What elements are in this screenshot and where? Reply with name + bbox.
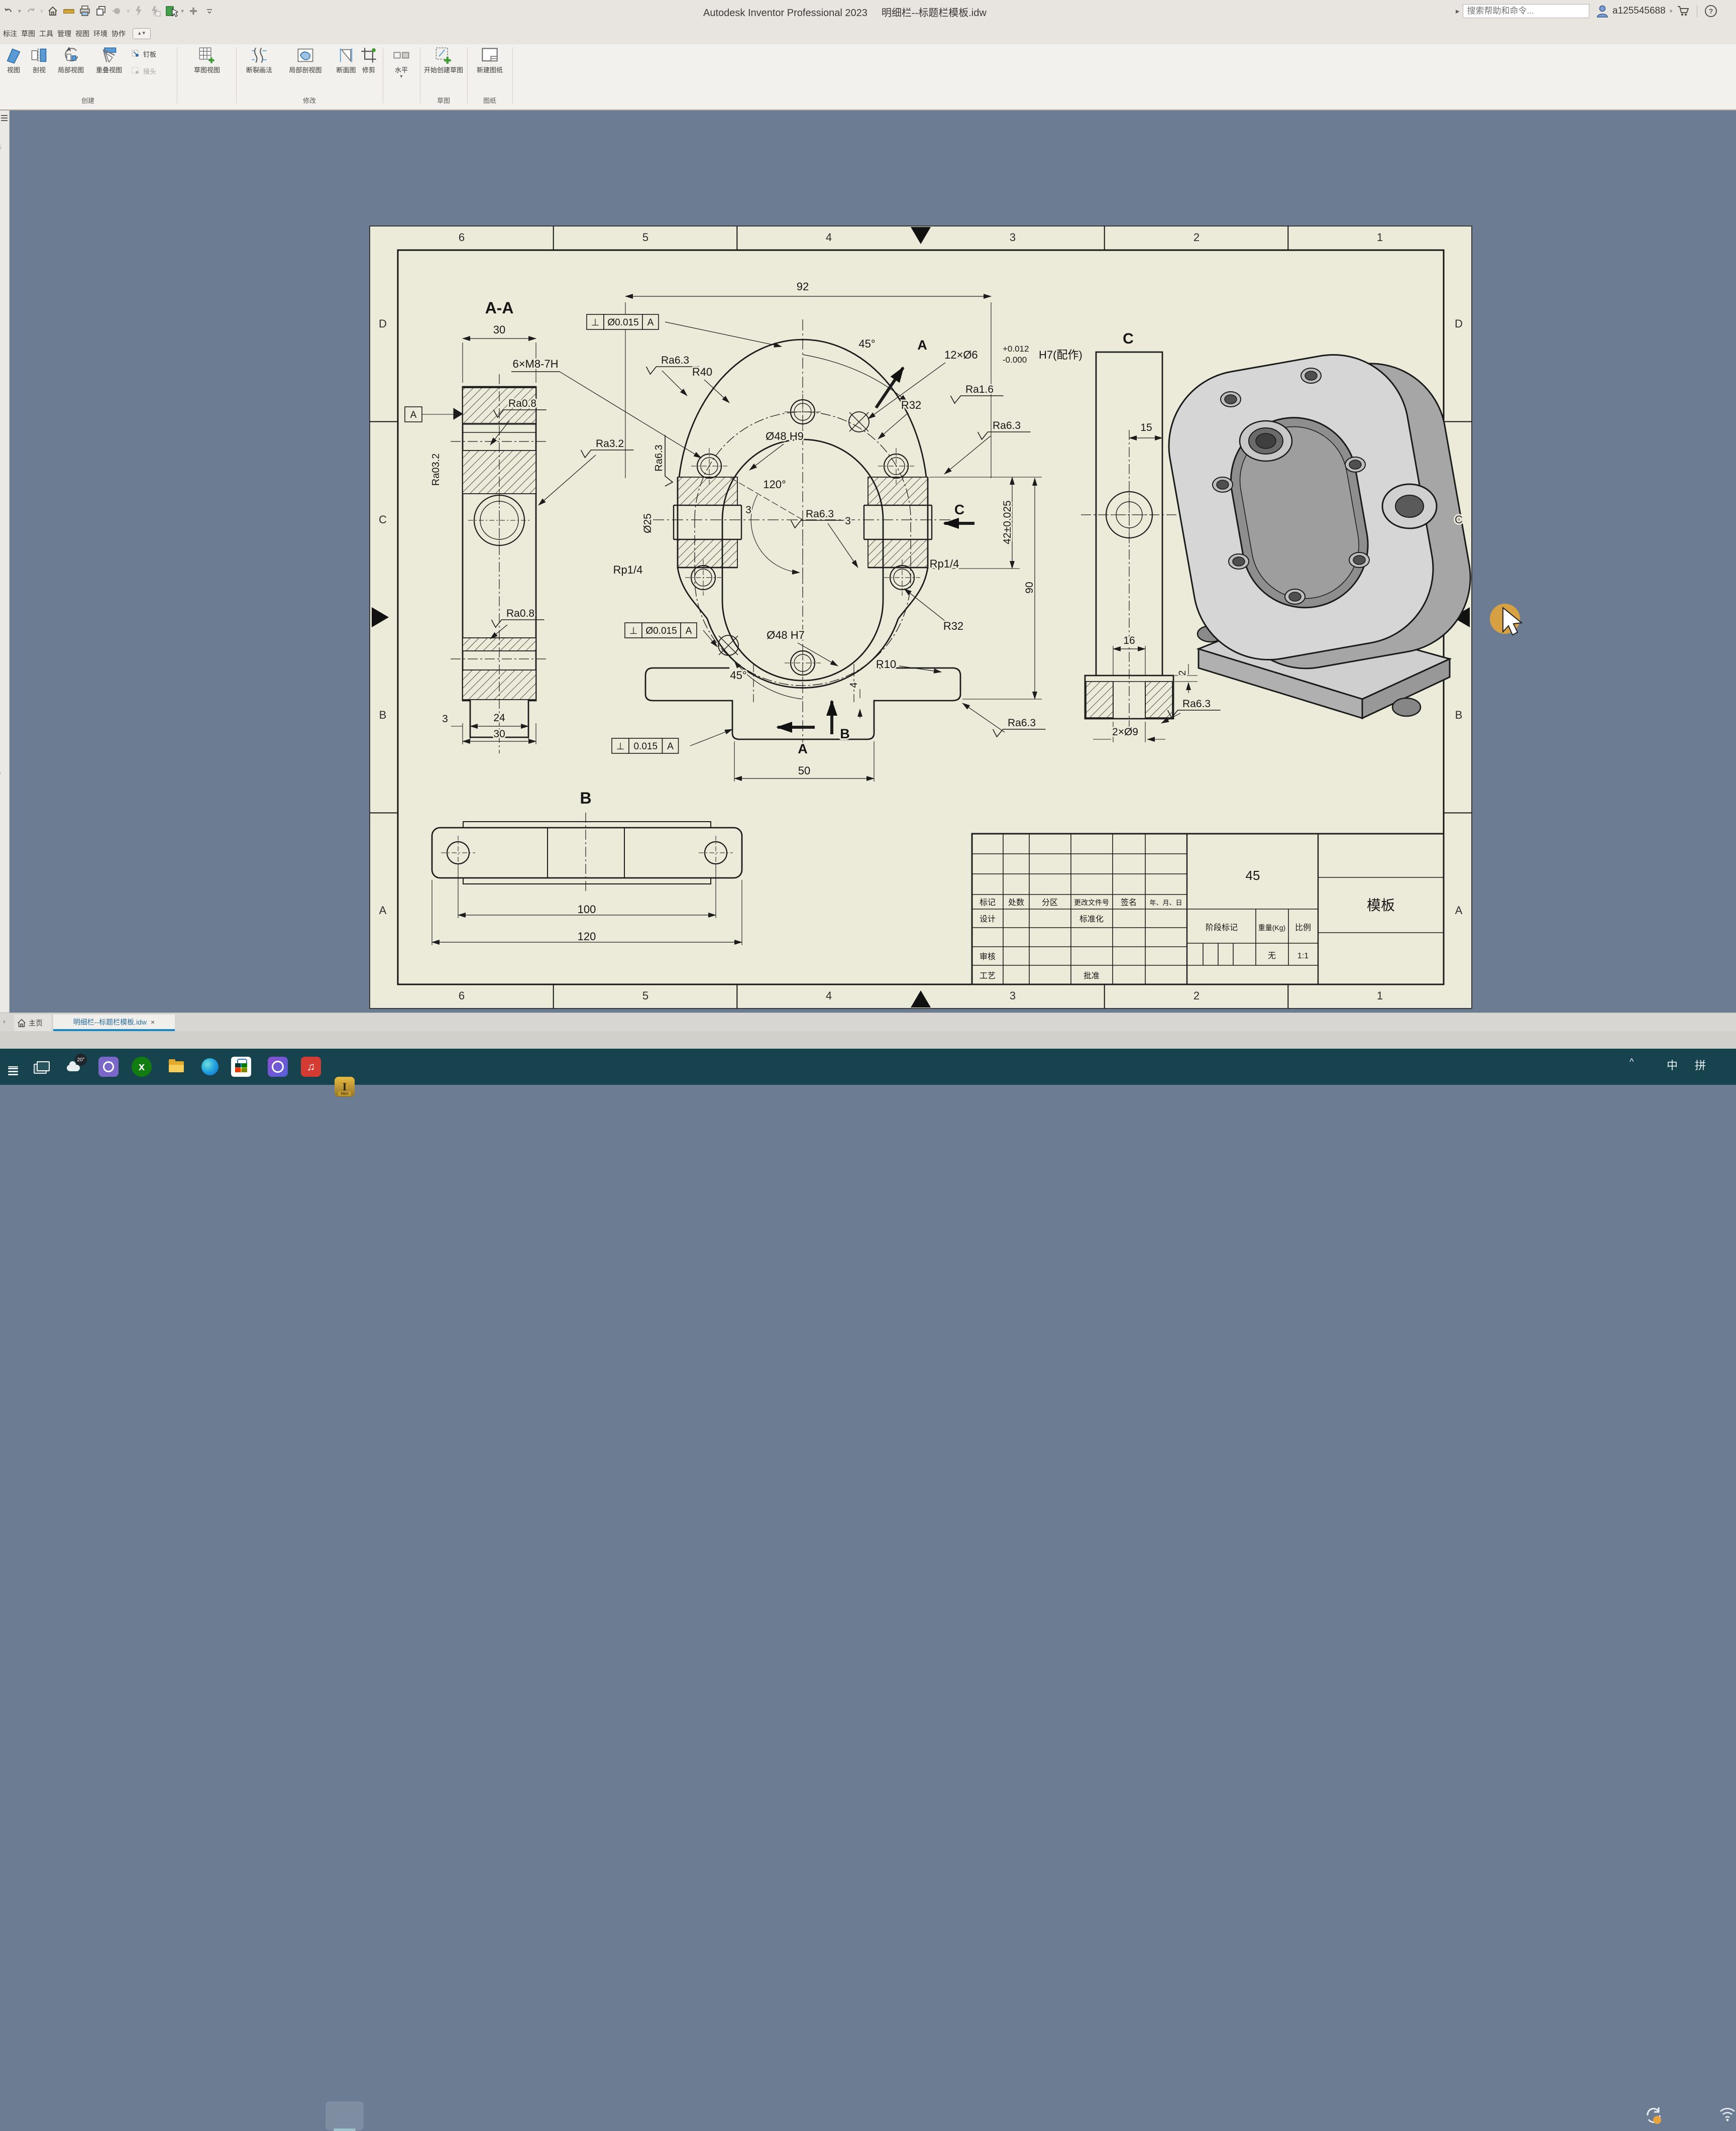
drawing-annotation: 3 — [845, 515, 851, 527]
task-view-icon[interactable] — [31, 1057, 51, 1077]
drawing-annotation: 工艺 — [980, 971, 996, 980]
video-app-icon[interactable] — [98, 1057, 119, 1077]
svg-text:C: C — [1123, 330, 1134, 347]
drawing-annotation: 3 — [1010, 231, 1016, 244]
start-menu-icon[interactable] — [3, 1057, 23, 1077]
drawing-annotation: A-A — [485, 299, 514, 317]
drawing-annotation: 6 — [459, 231, 465, 244]
group-label-create: 创建 — [0, 95, 176, 105]
ime-language-indicator[interactable]: 中 — [1667, 1057, 1678, 1073]
microsoft-store-icon[interactable] — [231, 1057, 251, 1077]
chevron-down-icon[interactable]: ▾ — [40, 8, 43, 15]
drawing-annotation: Ø48 H7 — [767, 629, 805, 641]
drawing-annotation: 标记 — [980, 898, 996, 907]
svg-text:D: D — [1455, 317, 1463, 330]
svg-text:100: 100 — [578, 903, 596, 916]
new-sheet-icon — [481, 46, 499, 64]
drawing-annotation: 更改文件号 — [1074, 899, 1109, 907]
svg-text:15: 15 — [1140, 422, 1152, 433]
drawing-annotation: Rp1/4 — [613, 564, 643, 576]
browser-strip-text: idw — [0, 145, 2, 152]
help-icon[interactable]: ? — [1704, 5, 1717, 18]
svg-text:Ra6.3: Ra6.3 — [654, 444, 665, 471]
svg-text:3: 3 — [745, 504, 751, 516]
drawing-annotation: H7(配作) — [1039, 349, 1082, 361]
breakout-button[interactable]: 局部剖视图 — [281, 46, 330, 74]
netease-music-icon[interactable]: ♫ — [301, 1057, 321, 1077]
svg-text:A: A — [686, 626, 692, 636]
drawing-annotation: 15 — [1140, 422, 1152, 433]
svg-text:Ra6.3: Ra6.3 — [993, 420, 1021, 431]
svg-text:A: A — [667, 741, 674, 752]
svg-text:B: B — [840, 726, 850, 741]
svg-text:分区: 分区 — [1042, 898, 1058, 907]
drawing-annotation: 比例 — [1295, 923, 1311, 932]
detail-view-button[interactable]: A 局部视图 — [52, 46, 89, 74]
taskbar: 20° x ♫ I PRO ^ 中 拼 — [0, 1049, 1736, 1085]
svg-text:年、月、日: 年、月、日 — [1149, 899, 1182, 907]
svg-text:30: 30 — [493, 323, 505, 336]
browser-panel-collapsed[interactable]: idw t — [0, 109, 10, 1031]
svg-text:92: 92 — [797, 280, 809, 293]
svg-text:?: ? — [1708, 7, 1713, 15]
horizontal-button[interactable]: 水平 ▼ — [387, 46, 416, 79]
svg-text:6: 6 — [459, 231, 465, 244]
drawing-annotation: B — [840, 726, 850, 741]
tab-sketch[interactable]: 草图 — [20, 27, 36, 40]
drawing-annotation: 100 — [578, 903, 596, 916]
customize-chevron-icon[interactable] — [203, 5, 216, 18]
group-label-sheets: 图纸 — [468, 95, 511, 105]
svg-text:B: B — [1455, 709, 1463, 721]
drawing-annotation: 4 — [848, 682, 859, 688]
drawing-annotation: 4 — [826, 989, 832, 1002]
svg-text:A-A: A-A — [485, 299, 514, 317]
sketch-view-button[interactable]: 草图视图 — [186, 46, 228, 74]
drawing-annotation: Ø25 — [642, 513, 654, 533]
title-bar: ▾ ▾ ▾ ▾ Autodesk Inventor Professional 2… — [0, 0, 1736, 23]
svg-text:H7(配作): H7(配作) — [1039, 349, 1082, 361]
inventor-icon[interactable]: I PRO — [335, 1077, 355, 1097]
tab-manage[interactable]: 管理 — [56, 27, 72, 40]
joint-button[interactable]: 接头 — [132, 66, 156, 76]
svg-text:1: 1 — [1377, 989, 1383, 1002]
svg-text:4: 4 — [826, 231, 832, 244]
detail-view-icon: A — [62, 46, 80, 64]
svg-text:B: B — [580, 789, 591, 807]
svg-text:Ra03.2: Ra03.2 — [430, 454, 442, 486]
base-view-icon — [5, 46, 23, 64]
drawing-annotation: 92 — [797, 280, 809, 293]
drawing-annotation: R32 — [943, 620, 963, 632]
svg-text:签名: 签名 — [1121, 898, 1137, 907]
status-strip — [0, 1031, 1736, 1049]
drawing-canvas[interactable]: A-A30Ra03.2Ra0.8Ra3.2Ra0.8324309245°A12×… — [0, 0, 1736, 1085]
edge-icon[interactable] — [200, 1057, 220, 1077]
group-label-modify: 修改 — [237, 95, 382, 105]
browser-menu-icon[interactable] — [1, 114, 8, 123]
cart-icon[interactable] — [1677, 5, 1690, 17]
overlay-view-button[interactable]: 重叠视图 — [90, 46, 128, 74]
close-tab-icon[interactable]: × — [151, 1018, 155, 1026]
chevron-down-icon[interactable]: ▼ — [399, 74, 404, 79]
drawing-annotation: 批准 — [1083, 971, 1100, 980]
drawing-annotation: 审核 — [980, 952, 996, 961]
svg-text:2×Ø9: 2×Ø9 — [1112, 726, 1138, 738]
drawing-annotation: 2×Ø9 — [1112, 726, 1138, 738]
feature-control-frame: A — [405, 407, 422, 422]
drawing-annotation: C — [1455, 513, 1463, 526]
active-app-indicator — [334, 2128, 356, 2131]
drawing-annotation: A — [1455, 904, 1463, 917]
svg-text:A: A — [917, 338, 927, 353]
drawing-annotation: B — [1455, 709, 1463, 721]
drawing-annotation: +0.012 — [1003, 344, 1029, 354]
svg-text:0.015: 0.015 — [633, 741, 658, 752]
svg-text:6×M8-7H: 6×M8-7H — [512, 358, 558, 370]
svg-text:R10: R10 — [876, 658, 896, 670]
horizontal-icon — [392, 46, 410, 64]
drawing-annotation: 阶段标记 — [1206, 923, 1238, 932]
drawing-annotation: 6×M8-7H — [512, 358, 558, 370]
svg-text:120: 120 — [578, 930, 596, 943]
feature-control-frame: ⊥Ø0.015A — [587, 314, 659, 329]
print-icon[interactable] — [78, 5, 91, 18]
svg-text:⊥: ⊥ — [629, 626, 638, 636]
svg-text:2: 2 — [1193, 989, 1200, 1002]
ribbon-tab-row: 标注 草图 工具 管理 视图 环境 协作 ▴ ▾ — [0, 22, 1736, 44]
search-expand-icon[interactable]: ▸ — [1456, 7, 1460, 16]
drawing-annotation: 50 — [798, 764, 810, 777]
svg-text:Ø48 H9: Ø48 H9 — [766, 430, 804, 442]
active-document-tab[interactable]: 明细栏--标题栏模板.idw × — [53, 1015, 175, 1029]
tab-collaborate[interactable]: 协作 — [111, 27, 127, 40]
svg-text:A: A — [647, 317, 654, 328]
base-view-button[interactable]: 视图 — [1, 46, 26, 74]
svg-text:50: 50 — [798, 764, 810, 777]
svg-text:Ø0.015: Ø0.015 — [607, 317, 638, 328]
tab-environment[interactable]: 环境 — [92, 27, 108, 40]
svg-text:Ra0.8: Ra0.8 — [506, 608, 534, 619]
drawing-annotation: 3 — [442, 713, 448, 725]
redo-icon[interactable] — [24, 5, 37, 18]
svg-text:Ra6.3: Ra6.3 — [661, 355, 689, 366]
svg-text:Ø25: Ø25 — [642, 513, 654, 533]
sketch-view-icon — [198, 46, 216, 64]
svg-text:4: 4 — [826, 989, 832, 1002]
svg-text:+0.012: +0.012 — [1003, 344, 1029, 354]
chevron-down-icon[interactable]: ▾ — [127, 8, 130, 15]
measure-icon[interactable] — [62, 5, 75, 18]
svg-text:45°: 45° — [730, 669, 746, 682]
drawing-annotation: 标准化 — [1079, 915, 1104, 924]
break-icon — [250, 46, 268, 64]
tab-scroll-icon[interactable]: › — [3, 1017, 6, 1025]
drawing-annotation: C — [954, 502, 964, 517]
feature-control-frame: ⊥Ø0.015A — [625, 623, 697, 638]
plus-icon[interactable] — [187, 5, 200, 18]
svg-text:Ra6.3: Ra6.3 — [1008, 717, 1036, 729]
copy-icon[interactable] — [94, 5, 107, 18]
svg-text:3: 3 — [1010, 989, 1016, 1002]
file-explorer-icon[interactable] — [166, 1057, 186, 1077]
drawing-annotation: A — [379, 904, 387, 917]
svg-text:Ra3.2: Ra3.2 — [596, 438, 624, 450]
svg-text:1:1: 1:1 — [1297, 952, 1309, 960]
svg-text:Ra0.8: Ra0.8 — [508, 398, 536, 409]
window-title: Autodesk Inventor Professional 2023明细栏--… — [703, 5, 1155, 19]
select-icon[interactable] — [165, 5, 178, 18]
document-tab-bar: › 主页 明细栏--标题栏模板.idw × — [0, 1013, 1736, 1031]
svg-text:B: B — [379, 709, 387, 721]
svg-text:R32: R32 — [943, 620, 963, 632]
svg-text:C: C — [954, 502, 964, 517]
svg-text:45°: 45° — [858, 338, 875, 350]
svg-text:更改文件号: 更改文件号 — [1074, 899, 1109, 907]
ime-mode-indicator[interactable]: 拼 — [1695, 1057, 1706, 1073]
svg-text:处数: 处数 — [1008, 898, 1024, 907]
user-id[interactable]: a125545688 — [1612, 6, 1666, 17]
joint-icon — [132, 67, 141, 76]
drawing-annotation: 12×Ø6 — [944, 349, 978, 361]
svg-text:90: 90 — [1024, 582, 1035, 593]
drawing-annotation: 45 — [1246, 868, 1260, 883]
start-sketch-button[interactable]: 开始创建草图 — [422, 46, 465, 74]
tab-view[interactable]: 视图 — [74, 27, 90, 40]
drawing-annotation: 42±0.025 — [1002, 500, 1013, 544]
drawing-annotation: R10 — [876, 658, 896, 670]
drawing-annotation: C — [379, 513, 387, 526]
group-label-sketch: 草图 — [421, 95, 466, 105]
svg-text:Ra6.3: Ra6.3 — [806, 508, 834, 520]
svg-text:无: 无 — [1268, 952, 1276, 960]
chevron-down-icon[interactable]: ▾ — [1670, 8, 1673, 15]
drawing-annotation: D — [379, 317, 387, 330]
svg-text:3: 3 — [845, 515, 851, 527]
svg-text:A: A — [379, 904, 387, 917]
ribbon-group-create: 视图 剖视 A 局部视图 重叠视图 钉板 接头 创建 — [0, 44, 176, 108]
drawing-annotation: 4 — [826, 231, 832, 244]
drawing-annotation: 3 — [1010, 989, 1016, 1002]
active-app-highlight — [325, 2101, 364, 2130]
svg-text:4: 4 — [848, 682, 859, 688]
sync-icon[interactable] — [1644, 2104, 1664, 2126]
drawing-annotation: B — [580, 789, 591, 807]
drawing-annotation: A — [917, 338, 927, 353]
svg-text:1: 1 — [1377, 231, 1383, 244]
drawing-annotation: 2 — [1177, 670, 1188, 676]
tab-annotate[interactable]: 标注 — [2, 27, 18, 40]
svg-text:R40: R40 — [692, 366, 712, 378]
drawing-annotation: 1 — [1377, 231, 1383, 244]
drawing-annotation: B — [379, 709, 387, 721]
drawing-annotation: R32 — [901, 399, 921, 411]
drawing-annotation: 2 — [1193, 989, 1200, 1002]
svg-text:2: 2 — [1193, 231, 1200, 244]
section-view-button[interactable]: 剖视 — [27, 46, 51, 74]
drawing-annotation: D — [1455, 317, 1463, 330]
svg-text:模板: 模板 — [1367, 898, 1395, 913]
breakout-icon — [296, 46, 314, 64]
flash-alt-icon[interactable] — [149, 5, 162, 18]
weather-icon[interactable]: 20° — [65, 1057, 85, 1077]
user-avatar-icon[interactable] — [1596, 5, 1608, 18]
drawing-annotation: A — [798, 741, 808, 756]
svg-text:C: C — [1455, 513, 1463, 526]
nailboard-button[interactable]: 钉板 — [132, 49, 156, 59]
svg-text:5: 5 — [642, 231, 648, 244]
svg-text:5: 5 — [642, 989, 648, 1002]
svg-text:12×Ø6: 12×Ø6 — [944, 349, 978, 361]
tab-tools[interactable]: 工具 — [38, 27, 54, 40]
drawing-annotation: 3 — [745, 504, 751, 516]
drawing-annotation: 30 — [493, 323, 505, 336]
svg-text:阶段标记: 阶段标记 — [1206, 923, 1238, 932]
svg-text:6: 6 — [459, 989, 465, 1002]
drawing-annotation: 年、月、日 — [1149, 899, 1182, 907]
svg-text:批准: 批准 — [1083, 971, 1100, 980]
svg-text:2: 2 — [1177, 670, 1188, 676]
quick-access-toolbar: ▾ ▾ ▾ ▾ — [2, 3, 216, 19]
nailboard-icon — [132, 50, 141, 59]
svg-text:3: 3 — [1010, 231, 1016, 244]
weather-badge: 20° — [75, 1054, 87, 1066]
drawing-annotation: 设计 — [980, 915, 996, 924]
social-ring-app-icon[interactable] — [268, 1057, 288, 1077]
drawing-annotation: 6 — [459, 989, 465, 1002]
svg-text:工艺: 工艺 — [980, 971, 996, 980]
drawing-annotation: 120 — [578, 930, 596, 943]
undo-icon[interactable] — [2, 5, 15, 18]
svg-text:⊥: ⊥ — [616, 741, 625, 752]
ribbon-group-sketch: 开始创建草图 草图 — [421, 44, 466, 108]
drawing-annotation: 重量(Kg) — [1258, 924, 1285, 932]
svg-text:R32: R32 — [901, 399, 921, 411]
svg-text:D: D — [379, 317, 387, 330]
svg-text:Ra6.3: Ra6.3 — [1182, 698, 1211, 710]
svg-text:30: 30 — [493, 728, 505, 740]
hidden-icons-chevron[interactable]: ^ — [1630, 1057, 1634, 1067]
ribbon-group-horizontal: 水平 ▼ — [384, 44, 419, 108]
playback-icon[interactable] — [111, 5, 124, 18]
svg-text:16: 16 — [1123, 635, 1135, 646]
svg-text:42±0.025: 42±0.025 — [1002, 500, 1013, 544]
svg-text:标记: 标记 — [980, 898, 996, 907]
overlay-view-icon — [100, 46, 118, 64]
new-sheet-button[interactable]: 新建图纸 — [469, 46, 510, 74]
drawing-annotation: 90 — [1024, 582, 1035, 593]
crop-button[interactable]: 修剪 — [357, 46, 381, 74]
start-sketch-icon — [435, 46, 453, 64]
wifi-icon[interactable] — [1719, 2106, 1736, 2121]
home-icon — [17, 1019, 26, 1028]
svg-text:Ø48 H7: Ø48 H7 — [767, 629, 805, 641]
chevron-down-icon[interactable]: ▾ — [181, 8, 184, 15]
svg-text:审核: 审核 — [980, 952, 996, 961]
crop-icon — [360, 46, 378, 64]
drawing-annotation: 处数 — [1008, 898, 1024, 907]
ribbon-group-sketchview: 草图视图 — [179, 44, 235, 108]
chevron-down-icon[interactable]: ▾ — [18, 8, 21, 15]
flash-icon[interactable] — [133, 5, 146, 18]
slice-icon — [337, 46, 355, 64]
ribbon-group-modify: 断裂画法 局部剖视图 断面图 修剪 修改 — [237, 44, 382, 108]
svg-text:Rp1/4: Rp1/4 — [930, 557, 959, 570]
drawing-annotation: 24 — [493, 712, 505, 724]
drawing-annotation: 5 — [642, 989, 648, 1002]
svg-text:-0.000: -0.000 — [1003, 355, 1027, 365]
svg-text:比例: 比例 — [1295, 923, 1311, 932]
xbox-icon[interactable]: x — [132, 1057, 152, 1077]
search-input[interactable] — [1463, 4, 1589, 18]
svg-text:A: A — [410, 410, 417, 420]
ribbon-collapse-icon[interactable]: ▴ ▾ — [133, 28, 151, 39]
drawing-annotation: 16 — [1123, 635, 1135, 646]
drawing-annotation: 分区 — [1042, 898, 1058, 907]
svg-text:Ra1.6: Ra1.6 — [965, 384, 994, 395]
svg-text:标准化: 标准化 — [1079, 915, 1104, 924]
drawing-annotation: 2 — [1193, 231, 1200, 244]
home-icon[interactable] — [46, 5, 59, 18]
drawing-annotation: 30 — [493, 728, 505, 740]
browser-strip-text: t — [0, 772, 2, 774]
drawing-annotation: 5 — [642, 231, 648, 244]
svg-text:Rp1/4: Rp1/4 — [613, 564, 643, 576]
svg-text:Ø0.015: Ø0.015 — [645, 626, 677, 636]
svg-text:⊥: ⊥ — [591, 317, 600, 328]
svg-text:A: A — [1455, 904, 1463, 917]
drawing-annotation: 120° — [763, 478, 786, 491]
feature-control-frame: ⊥0.015A — [612, 738, 679, 753]
home-tab[interactable]: 主页 — [14, 1015, 51, 1031]
ribbon: 视图 剖视 A 局部视图 重叠视图 钉板 接头 创建 草图视图 — [0, 44, 1736, 110]
drawing-annotation: 签名 — [1121, 898, 1137, 907]
svg-text:重量(Kg): 重量(Kg) — [1258, 924, 1285, 932]
drawing-annotation: C — [1123, 330, 1134, 347]
svg-text:45: 45 — [1246, 868, 1260, 883]
ribbon-group-sheets: 新建图纸 图纸 — [468, 44, 511, 108]
drawing-annotation: 模板 — [1367, 898, 1395, 913]
svg-text:A: A — [67, 47, 71, 53]
drawing-annotation: 1:1 — [1297, 952, 1309, 960]
break-button[interactable]: 断裂画法 — [238, 46, 280, 74]
drawing-annotation: Ra03.2 — [430, 454, 442, 486]
svg-text:3: 3 — [442, 713, 448, 725]
svg-text:120°: 120° — [763, 478, 786, 491]
drawing-annotation: Rp1/4 — [930, 557, 959, 570]
drawing-annotation: 1 — [1377, 989, 1383, 1002]
svg-text:C: C — [379, 513, 387, 526]
drawing-annotation: 45° — [730, 669, 746, 682]
drawing-annotation: -0.000 — [1003, 355, 1027, 365]
drawing-annotation: 无 — [1268, 952, 1276, 960]
drawing-annotation: Ø48 H9 — [766, 430, 804, 442]
section-view-icon — [30, 46, 48, 64]
svg-text:设计: 设计 — [980, 915, 996, 924]
svg-text:A: A — [798, 741, 808, 756]
svg-text:24: 24 — [493, 712, 505, 724]
drawing-annotation: 45° — [858, 338, 875, 350]
drawing-annotation: R40 — [692, 366, 712, 378]
